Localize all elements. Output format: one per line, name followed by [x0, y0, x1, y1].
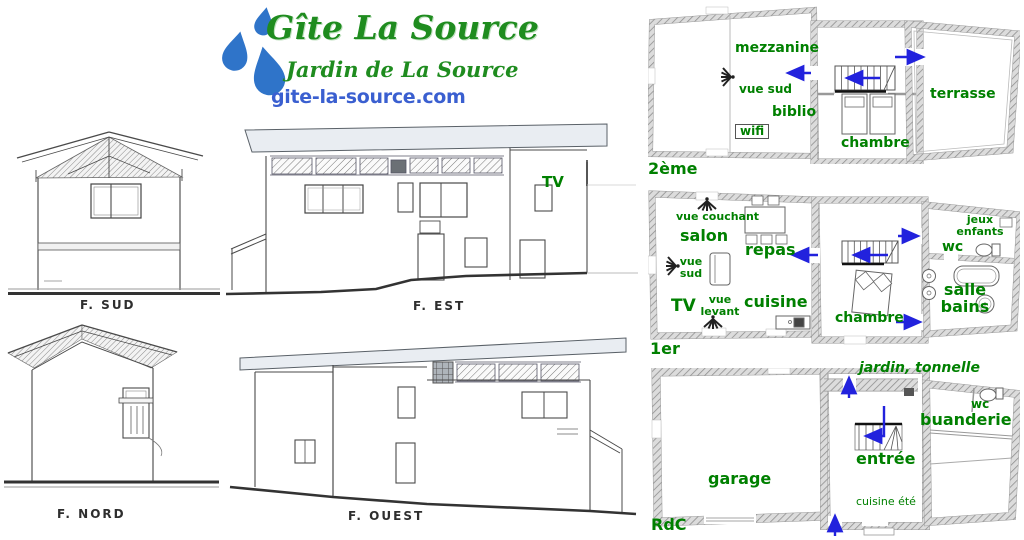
garage-door: [704, 514, 756, 524]
bed: [842, 94, 895, 134]
wifi-badge: wifi: [735, 124, 769, 139]
porch-step: [864, 528, 894, 535]
room-label-repas: repas: [745, 242, 796, 259]
room-label-cuisine: cuisine: [744, 294, 808, 311]
floor-plan-2eme-drawing: [648, 4, 1020, 164]
chimney: [904, 388, 914, 396]
window: [119, 388, 153, 438]
elevation-nord-drawing: [4, 322, 219, 531]
page: Gîte La Source Jardin de La Source gite-…: [0, 0, 1024, 540]
sofa: [710, 253, 730, 285]
elevation-ouest-drawing: [226, 332, 638, 537]
view-fan-icon: [721, 68, 735, 86]
room-label-tv: TV: [671, 298, 696, 316]
room-label-vue-levant: vue levant: [697, 294, 743, 317]
room-label-vue-sud: vue sud: [739, 83, 792, 96]
room-label-vue-couchant: vue couchant: [676, 211, 759, 223]
elevation-sud-label: F. SUD: [80, 298, 136, 312]
elevation-est-drawing: [226, 122, 641, 314]
room-label-chambre: chambre: [835, 311, 904, 326]
elevation-nord-label: F. NORD: [57, 507, 126, 521]
room-label-entree: entrée: [856, 451, 915, 468]
floor-plan-rdc-drawing: [648, 368, 1020, 540]
window: [398, 183, 413, 212]
room-label-jeux-enfants: jeux enfants: [953, 214, 1007, 237]
room-label-mezzanine: mezzanine: [735, 41, 819, 56]
floor-label-rdc: RdC: [651, 517, 687, 534]
stairs: [842, 241, 898, 264]
website-link[interactable]: gite-la-source.com: [271, 86, 466, 108]
kitchen-counter: [776, 316, 810, 329]
room-label-wc: wc: [971, 398, 989, 411]
window: [91, 184, 141, 218]
window: [398, 387, 415, 418]
site-title: Gîte La Source: [266, 8, 539, 47]
room-label-vue-sud: vue sud: [676, 256, 706, 279]
room-label-wc: wc: [942, 240, 963, 255]
tv-annotation: TV: [542, 175, 564, 191]
room-label-buanderie: buanderie: [920, 412, 1012, 429]
room-label-terrasse: terrasse: [930, 87, 996, 102]
room-label-garage: garage: [708, 471, 771, 488]
floor-label-1er: 1er: [650, 341, 680, 358]
window: [420, 183, 467, 217]
label-jardin-tonnelle: jardin, tonnelle: [859, 361, 980, 376]
bed: [852, 270, 893, 316]
site-subtitle: Jardin de La Source: [286, 57, 519, 82]
room-label-cuisine-ete: cuisine été: [856, 496, 916, 508]
floor-label-2eme: 2ème: [648, 161, 698, 178]
window: [465, 238, 487, 267]
room-label-chambre: chambre: [841, 136, 910, 151]
room-label-salon: salon: [680, 228, 728, 245]
elevation-sud-drawing: [8, 126, 220, 318]
clerestory: [455, 362, 581, 382]
toilet: [976, 244, 1000, 256]
window: [305, 185, 363, 213]
window: [522, 392, 567, 418]
door: [396, 443, 415, 483]
room-label-biblio: biblio: [772, 105, 816, 120]
door: [418, 234, 444, 280]
room-label-salle-bains: salle bains: [936, 282, 994, 316]
clerestory: [270, 156, 504, 175]
elevation-est-label: F. EST: [413, 299, 465, 313]
elevation-ouest-label: F. OUEST: [348, 509, 424, 523]
door: [520, 240, 545, 278]
